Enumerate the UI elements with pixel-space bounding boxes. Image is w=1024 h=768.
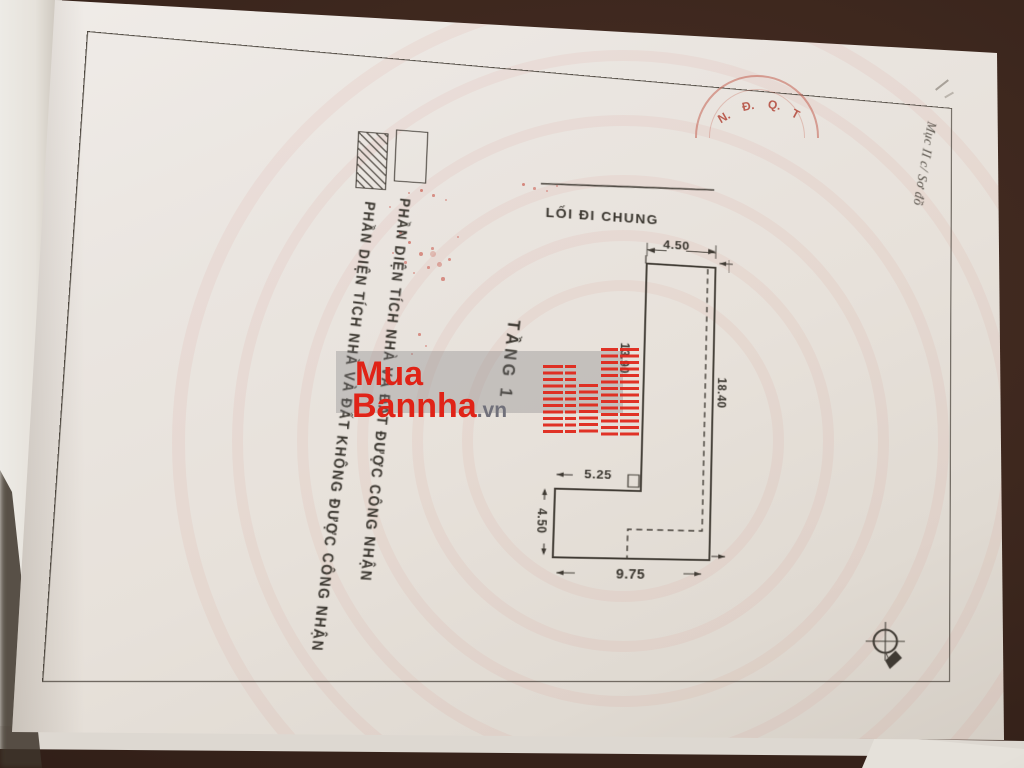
logo-tower bbox=[543, 365, 563, 436]
stamp-letter: Đ. bbox=[741, 98, 756, 114]
arrowhead bbox=[694, 572, 701, 577]
watermark-line2: Bannha.vn bbox=[352, 389, 507, 423]
dim-notch-width: 5.25 bbox=[576, 467, 621, 482]
shared-path-fence-line bbox=[541, 177, 714, 196]
watermark-logo-icon bbox=[543, 348, 640, 436]
right-angle-mark bbox=[628, 475, 639, 488]
watermark-word1: Mua bbox=[355, 357, 423, 391]
circular-stamp: N. Đ. Q. T bbox=[694, 74, 822, 138]
stamp-letter: Q. bbox=[767, 97, 781, 113]
logo-tower bbox=[565, 365, 576, 436]
arrowhead bbox=[718, 554, 725, 559]
arrowhead bbox=[708, 249, 716, 255]
arrowhead bbox=[542, 488, 547, 495]
arrowhead bbox=[556, 472, 563, 477]
dim-right-length: 18.40 bbox=[714, 377, 728, 408]
logo-tower bbox=[601, 348, 618, 436]
dim-notch-height: 4.50 bbox=[534, 508, 549, 533]
watermark-word2: Bannha bbox=[352, 387, 477, 425]
arrowhead bbox=[647, 247, 655, 253]
logo-tower bbox=[620, 348, 639, 436]
dim-bottom-width: 9.75 bbox=[606, 566, 655, 582]
arrowhead bbox=[541, 548, 546, 555]
arrowhead bbox=[556, 570, 563, 575]
arrowhead bbox=[719, 261, 726, 266]
watermark-suffix: .vn bbox=[477, 399, 507, 422]
logo-tower bbox=[579, 384, 598, 436]
pencil-mark bbox=[728, 260, 730, 273]
photographed-certificate-page: PHẦN DIỆN TÍCH NHÀ VÀ ĐẤT KHÔNG ĐƯỢC CÔN… bbox=[0, 0, 1024, 768]
dim-top-width: 4.50 bbox=[657, 237, 696, 253]
